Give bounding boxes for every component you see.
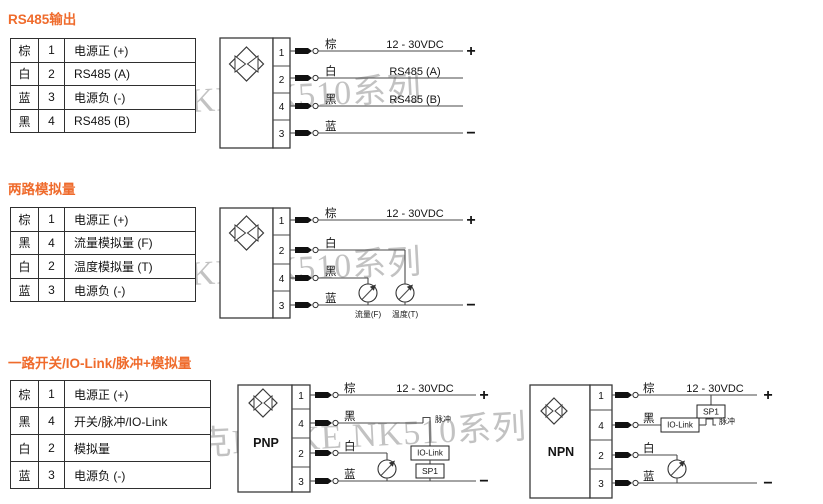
sensor-box: 1 2 4 3	[220, 208, 290, 318]
pin-number-cell: 4	[39, 109, 65, 133]
table-row: 蓝 3 电源负 (-)	[11, 462, 211, 489]
pin-number: 2	[298, 449, 304, 460]
analog-meter-icon	[378, 460, 396, 478]
wire-color-cell: 棕	[11, 208, 39, 232]
pin-number: 4	[279, 274, 285, 285]
wire-terminal-circle	[333, 420, 338, 425]
pin-number-cell: 1	[39, 39, 65, 63]
wire-brown: 棕 12 - 30VDC +	[290, 37, 476, 60]
table-row: 白 2 RS485 (A)	[11, 62, 196, 86]
wire-terminal-circle	[313, 75, 318, 80]
pin-function-cell: 电源负 (-)	[65, 462, 211, 489]
wire-terminal-circle	[333, 392, 338, 397]
flow-meter-label: 流量(F)	[355, 309, 382, 319]
minus-terminal: −	[479, 473, 488, 490]
terminal-lug	[315, 478, 332, 484]
sp1-label: SP1	[422, 466, 438, 476]
pin-number: 2	[598, 451, 604, 462]
terminal-lug	[295, 302, 312, 308]
wiring-diagram-rs485: 1 2 4 3 棕 12 - 30VDC + 白 RS485 (A)	[215, 30, 480, 158]
wire-terminal-circle	[313, 217, 318, 222]
pin-function-cell: 温度模拟量 (T)	[65, 255, 196, 279]
wire-terminal-circle	[313, 247, 318, 252]
wire-black: 黑	[290, 265, 368, 284]
pin-table-analog: 棕 1 电源正 (+) 黑 4 流量模拟量 (F) 白 2 温度模拟量 (T) …	[10, 207, 196, 302]
wire-blue: 蓝 −	[612, 470, 773, 492]
pin-number: 3	[279, 301, 285, 312]
pin-number: 3	[298, 477, 304, 488]
wire-terminal-circle	[313, 130, 318, 135]
pin-number: 3	[279, 129, 285, 140]
wire-color-label: 黑	[643, 412, 655, 425]
npn-label: NPN	[548, 445, 574, 459]
pin-number-cell: 2	[39, 62, 65, 86]
pulse-label: 脉冲	[435, 414, 451, 424]
plus-terminal: +	[466, 43, 475, 60]
terminal-lug	[615, 452, 632, 458]
pin-number: 1	[598, 391, 604, 402]
wire-line-label: 12 - 30VDC	[396, 383, 454, 395]
pin-number: 2	[279, 75, 285, 86]
table-row: 白 2 模拟量	[11, 435, 211, 462]
wire-brown: 棕 12 - 30VDC + SP1	[612, 381, 773, 418]
wire-brown: 棕 12 - 30VDC +	[310, 381, 489, 404]
pin-number: 4	[598, 421, 604, 432]
iolink-label: IO-Link	[417, 449, 444, 458]
pulse-label: 脉冲	[719, 416, 735, 426]
wire-color-label: 棕	[325, 37, 337, 51]
pin-number-cell: 3	[39, 86, 65, 110]
wire-terminal-circle	[313, 103, 318, 108]
pin-number: 2	[279, 246, 285, 257]
pin-number-cell: 2	[39, 255, 65, 279]
terminal-lug	[615, 392, 632, 398]
wire-color-cell: 蓝	[11, 86, 39, 110]
terminal-lug	[295, 48, 312, 54]
wire-color-cell: 白	[11, 62, 39, 86]
wire-terminal-circle	[313, 48, 318, 53]
wire-color-cell: 黑	[11, 231, 39, 255]
pin-function-cell: 电源正 (+)	[65, 381, 211, 408]
wire-terminal-circle	[333, 450, 338, 455]
section-title-iolink: 一路开关/IO-Link/脉冲+模拟量	[8, 352, 191, 372]
wire-color-label: 白	[325, 64, 337, 78]
pin-function-cell: 模拟量	[65, 435, 211, 462]
wire-color-label: 棕	[325, 206, 337, 220]
wire-terminal-circle	[313, 275, 318, 280]
minus-terminal: −	[763, 475, 772, 492]
table-row: 棕 1 电源正 (+)	[11, 208, 196, 232]
pin-number: 1	[279, 48, 285, 59]
pulse-icon	[423, 418, 430, 424]
wire-brown: 棕 12 - 30VDC +	[290, 206, 476, 229]
wire-color-label: 蓝	[344, 468, 356, 481]
wire-color-label: 白	[344, 439, 356, 453]
wire-black: 黑 RS485 (B)	[290, 93, 463, 109]
pin-function-cell: 电源正 (+)	[65, 208, 196, 232]
section-title-rs485: RS485输出	[8, 8, 76, 28]
pin-number: 4	[298, 419, 304, 430]
pin-number-cell: 1	[39, 381, 65, 408]
wire-color-label: 棕	[643, 381, 655, 395]
analog-meter-icon	[668, 460, 686, 478]
pin-number-cell: 4	[39, 408, 65, 435]
wire-blue: 蓝 −	[290, 292, 476, 314]
pin-number-cell: 1	[39, 208, 65, 232]
table-row: 黑 4 RS485 (B)	[11, 109, 196, 133]
plus-terminal: +	[479, 387, 488, 404]
pin-function-cell: 电源负 (-)	[65, 86, 196, 110]
minus-terminal: −	[466, 297, 475, 314]
terminal-lug	[315, 450, 332, 456]
wire-color-label: 蓝	[643, 470, 655, 483]
terminal-lug	[615, 422, 632, 428]
wire-terminal-circle	[633, 480, 638, 485]
pin-number-cell: 3	[39, 462, 65, 489]
table-row: 棕 1 电源正 (+)	[11, 39, 196, 63]
pin-function-cell: 流量模拟量 (F)	[65, 231, 196, 255]
page: 泉克NOIKE NK510系列 泉克NOIKE NK510系列 泉克NOIKE …	[0, 0, 823, 504]
pin-number: 4	[279, 102, 285, 113]
temp-meter-icon: 温度(T)	[392, 284, 419, 319]
wire-blue: 蓝 −	[290, 120, 476, 142]
table-row: 黑 4 流量模拟量 (F)	[11, 231, 196, 255]
wire-color-cell: 蓝	[11, 462, 39, 489]
wire-terminal-circle	[633, 452, 638, 457]
wiring-diagram-npn: NPN 1 4 2 3 棕 12 - 30VDC + SP1 IO-Link	[520, 372, 820, 504]
terminal-lug	[295, 217, 312, 223]
wire-line-label: 12 - 30VDC	[686, 383, 744, 395]
wire-color-cell: 蓝	[11, 278, 39, 302]
wire-color-cell: 棕	[11, 39, 39, 63]
terminal-lug	[315, 392, 332, 398]
wire-line-label: RS485 (A)	[389, 66, 440, 78]
sensor-box: 1 2 4 3	[220, 38, 290, 148]
wire-terminal-circle	[313, 302, 318, 307]
section-title-analog: 两路模拟量	[8, 178, 76, 198]
pin-function-cell: RS485 (B)	[65, 109, 196, 133]
wire-color-label: 蓝	[325, 120, 337, 133]
pin-number: 3	[598, 479, 604, 490]
temp-meter-label: 温度(T)	[392, 309, 419, 319]
pin-number-cell: 3	[39, 278, 65, 302]
wire-color-cell: 白	[11, 255, 39, 279]
terminal-lug	[295, 103, 312, 109]
wire-terminal-circle	[333, 478, 338, 483]
wire-line-label: 12 - 30VDC	[386, 39, 444, 51]
wire-color-cell: 黑	[11, 408, 39, 435]
wire-white: 白 RS485 (A)	[290, 64, 463, 81]
pin-function-cell: 电源正 (+)	[65, 39, 196, 63]
pin-table-rs485: 棕 1 电源正 (+) 白 2 RS485 (A) 蓝 3 电源负 (-) 黑 …	[10, 38, 196, 133]
wire-color-label: 黑	[344, 410, 356, 423]
wire-line-label: 12 - 30VDC	[386, 208, 444, 220]
wiring-diagram-analog: 1 2 4 3 棕 12 - 30VDC + 白	[215, 200, 480, 335]
wire-blue: 蓝 −	[310, 468, 489, 490]
wire-color-label: 白	[643, 441, 655, 455]
pin-table-iolink: 棕 1 电源正 (+) 黑 4 开关/脉冲/IO-Link 白 2 模拟量 蓝 …	[10, 380, 211, 489]
terminal-lug	[295, 75, 312, 81]
pin-number-cell: 2	[39, 435, 65, 462]
table-row: 棕 1 电源正 (+)	[11, 381, 211, 408]
plus-terminal: +	[763, 387, 772, 404]
pin-number-cell: 4	[39, 231, 65, 255]
wiring-diagram-pnp: PNP 1 4 2 3 棕 12 - 30VDC + 黑 脉冲 IO-Link	[230, 372, 495, 504]
terminal-lug	[295, 247, 312, 253]
minus-terminal: −	[466, 125, 475, 142]
plus-terminal: +	[466, 212, 475, 229]
sp1-label: SP1	[703, 407, 719, 417]
table-row: 白 2 温度模拟量 (T)	[11, 255, 196, 279]
table-row: 蓝 3 电源负 (-)	[11, 278, 196, 302]
pulse-icon	[706, 419, 716, 425]
wire-color-label: 黑	[325, 93, 337, 106]
wire-color-cell: 黑	[11, 109, 39, 133]
pin-function-cell: 电源负 (-)	[65, 278, 196, 302]
wire-terminal-circle	[633, 392, 638, 397]
wire-color-label: 黑	[325, 265, 337, 278]
terminal-lug	[615, 480, 632, 486]
table-row: 黑 4 开关/脉冲/IO-Link	[11, 408, 211, 435]
wire-color-label: 棕	[344, 381, 356, 395]
wire-color-cell: 棕	[11, 381, 39, 408]
sensor-box: NPN 1 4 2 3	[530, 385, 612, 498]
wire-terminal-circle	[633, 422, 638, 427]
terminal-lug	[295, 130, 312, 136]
pin-number: 1	[279, 216, 285, 227]
table-row: 蓝 3 电源负 (-)	[11, 86, 196, 110]
wire-color-cell: 白	[11, 435, 39, 462]
terminal-lug	[295, 275, 312, 281]
wire-color-label: 白	[325, 236, 337, 250]
wire-line-label: RS485 (B)	[389, 94, 440, 106]
flow-meter-icon: 流量(F)	[355, 284, 382, 319]
pnp-label: PNP	[253, 436, 279, 450]
terminal-lug	[315, 420, 332, 426]
wire-color-label: 蓝	[325, 292, 337, 305]
sensor-box: PNP 1 4 2 3	[238, 385, 310, 492]
pin-function-cell: 开关/脉冲/IO-Link	[65, 408, 211, 435]
pin-number: 1	[298, 391, 304, 402]
iolink-label: IO-Link	[667, 421, 694, 430]
pin-function-cell: RS485 (A)	[65, 62, 196, 86]
